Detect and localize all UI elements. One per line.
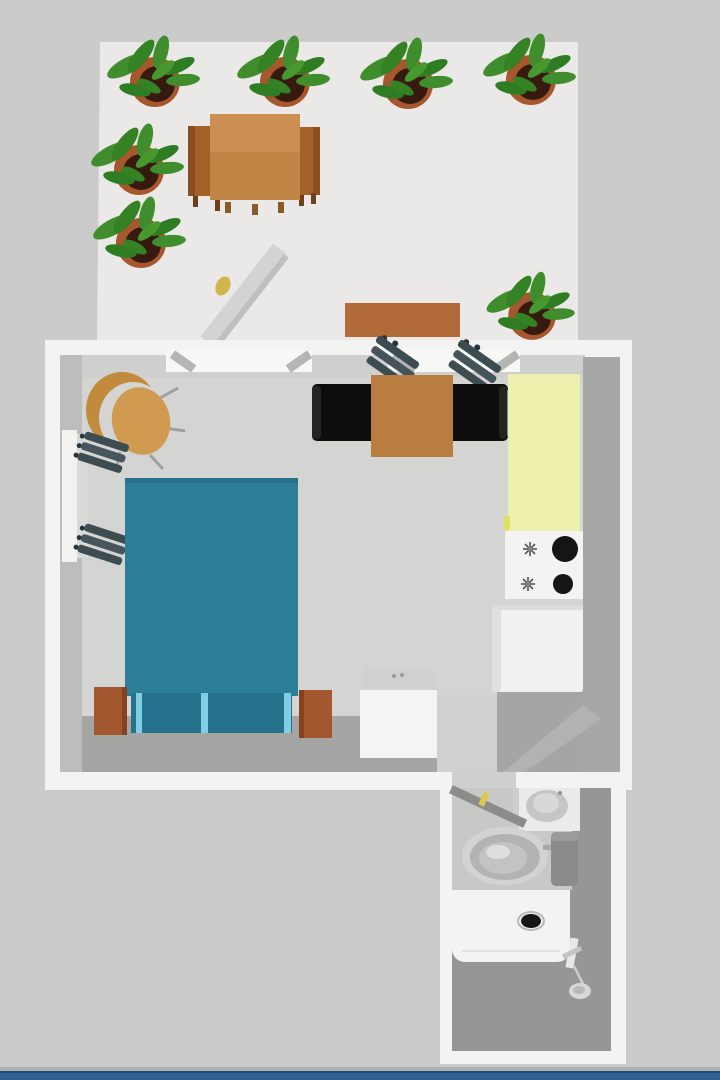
floor-shadow-right xyxy=(497,692,583,716)
side-cabinet[interactable] xyxy=(551,832,578,886)
terrace-mat[interactable] xyxy=(345,303,460,337)
bed-pillows[interactable] xyxy=(131,693,292,733)
bed[interactable] xyxy=(125,478,298,733)
bathroom-wall-bottom xyxy=(440,1051,626,1064)
shower-tray[interactable] xyxy=(452,890,570,962)
bathroom-wall-right xyxy=(611,788,626,1064)
doorway-gap xyxy=(452,772,516,788)
wall-face-left xyxy=(60,355,82,775)
coffee-table[interactable] xyxy=(371,375,453,457)
window-left[interactable] xyxy=(166,350,312,373)
stove-knob[interactable] xyxy=(523,542,537,556)
floorplan-stage xyxy=(0,0,720,1080)
stove[interactable] xyxy=(505,531,583,599)
bed-blanket[interactable] xyxy=(125,478,298,696)
floorplan-canvas xyxy=(0,0,720,1080)
kitchen-counter[interactable] xyxy=(504,374,580,531)
fridge[interactable] xyxy=(492,606,583,692)
room-wall-bottom xyxy=(45,772,632,788)
nightstand-left[interactable] xyxy=(94,687,127,735)
nightstand-right[interactable] xyxy=(299,690,332,738)
drain[interactable] xyxy=(521,914,541,928)
stove-knob[interactable] xyxy=(521,577,535,591)
footer-bar-top-edge xyxy=(0,1071,720,1073)
storage-cube[interactable] xyxy=(360,667,437,758)
bathroom-wall-left xyxy=(440,788,452,1064)
burner-large[interactable] xyxy=(552,536,578,562)
burner-small[interactable] xyxy=(553,574,573,594)
floor-walkway xyxy=(437,695,497,772)
